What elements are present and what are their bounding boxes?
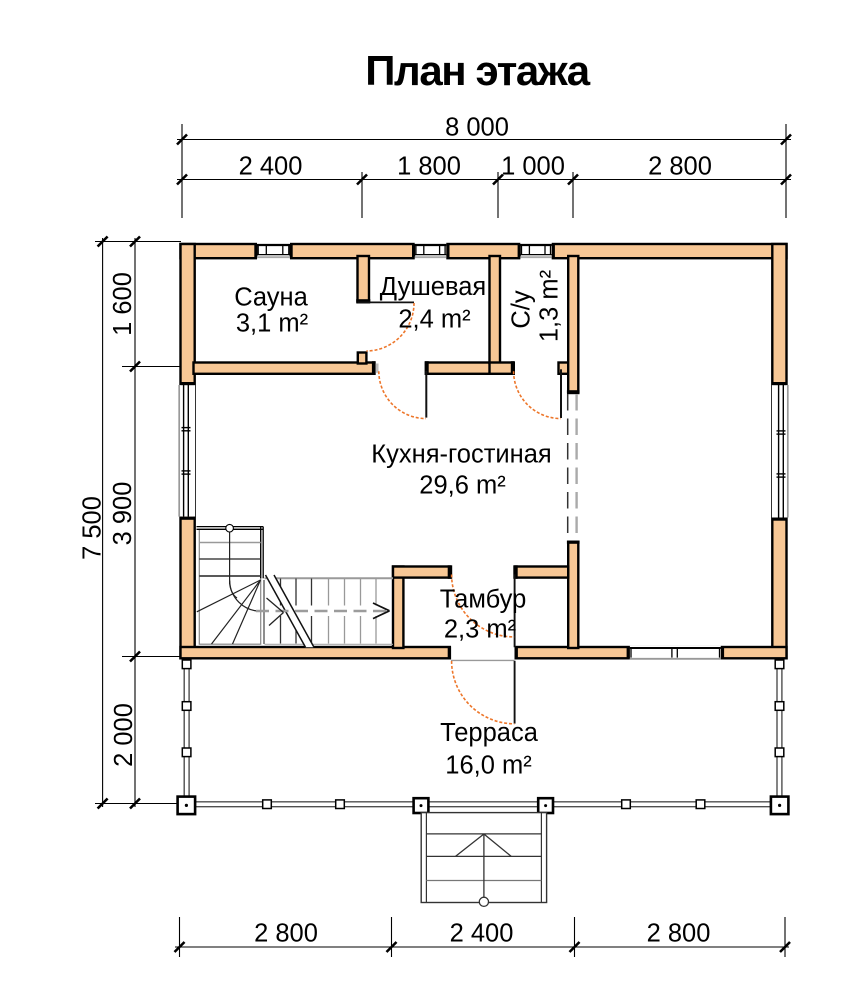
svg-text:3 900: 3 900 xyxy=(109,482,137,546)
svg-text:С/у: С/у xyxy=(508,290,536,329)
svg-text:2,3 m²: 2,3 m² xyxy=(444,616,516,644)
svg-text:Душевая: Душевая xyxy=(380,273,486,301)
svg-text:1 000: 1 000 xyxy=(501,153,565,181)
svg-text:Сауна: Сауна xyxy=(234,283,308,311)
svg-text:1 800: 1 800 xyxy=(397,153,461,181)
svg-text:План этажа: План этажа xyxy=(365,47,591,94)
svg-text:Кухня-гостиная: Кухня-гостиная xyxy=(371,441,551,469)
svg-text:2 800: 2 800 xyxy=(254,920,318,948)
svg-text:2,4 m²: 2,4 m² xyxy=(398,306,470,334)
svg-text:1,3 m²: 1,3 m² xyxy=(536,270,564,342)
svg-text:Терраса: Терраса xyxy=(440,719,539,747)
svg-text:1 600: 1 600 xyxy=(109,272,137,336)
svg-text:2 400: 2 400 xyxy=(450,920,514,948)
svg-text:2 400: 2 400 xyxy=(239,153,303,181)
svg-text:2 000: 2 000 xyxy=(110,703,138,767)
svg-text:2 800: 2 800 xyxy=(647,920,711,948)
svg-text:2 800: 2 800 xyxy=(648,153,712,181)
svg-text:8 000: 8 000 xyxy=(445,114,509,142)
svg-text:Тамбур: Тамбур xyxy=(440,586,527,614)
svg-text:29,6 m²: 29,6 m² xyxy=(419,472,505,500)
svg-text:3,1 m²: 3,1 m² xyxy=(236,310,308,338)
svg-text:7 500: 7 500 xyxy=(79,496,107,560)
svg-text:16,0 m²: 16,0 m² xyxy=(445,752,531,780)
